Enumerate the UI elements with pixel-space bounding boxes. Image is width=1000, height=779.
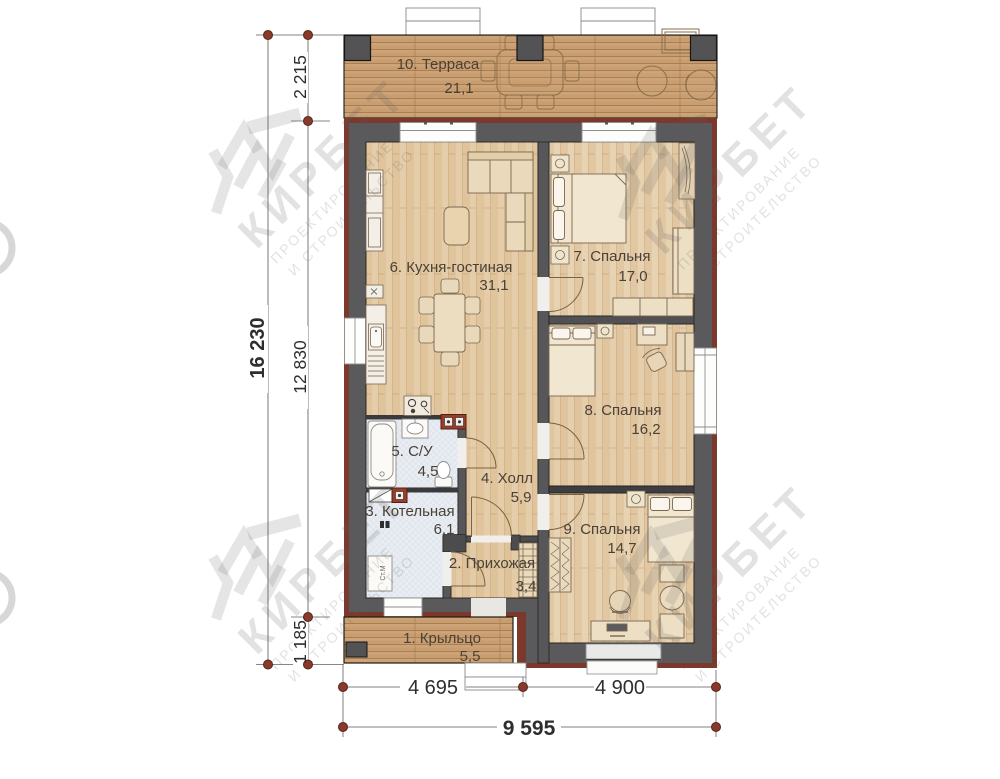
svg-text:2. Прихожая: 2. Прихожая [449, 555, 535, 572]
svg-text:1 185: 1 185 [290, 620, 310, 664]
svg-text:6,1: 6,1 [434, 521, 455, 538]
svg-text:9 595: 9 595 [503, 717, 556, 740]
svg-text:7. Спальня: 7. Спальня [574, 248, 651, 265]
svg-text:5,9: 5,9 [511, 489, 532, 506]
svg-text:6. Кухня-гостиная: 6. Кухня-гостиная [390, 259, 513, 276]
svg-text:5. С/У: 5. С/У [391, 443, 433, 460]
svg-text:16,2: 16,2 [631, 421, 660, 438]
svg-text:8. Спальня: 8. Спальня [585, 402, 662, 419]
svg-text:17,0: 17,0 [618, 268, 647, 285]
svg-text:12 830: 12 830 [290, 340, 310, 394]
svg-text:10. Терраса: 10. Терраса [397, 56, 480, 73]
svg-text:14,7: 14,7 [607, 540, 636, 557]
svg-text:5,5: 5,5 [460, 648, 481, 665]
svg-text:3. Котельная: 3. Котельная [365, 503, 454, 520]
svg-text:4,5: 4,5 [418, 463, 439, 480]
svg-text:31,1: 31,1 [479, 277, 508, 294]
svg-text:1. Крыльцо: 1. Крыльцо [403, 630, 481, 647]
svg-text:4. Холл: 4. Холл [481, 470, 533, 487]
svg-text:21,1: 21,1 [444, 80, 473, 97]
svg-text:3,4: 3,4 [516, 578, 537, 595]
svg-text:2 215: 2 215 [290, 55, 310, 99]
svg-text:9. Спальня: 9. Спальня [564, 521, 641, 538]
svg-text:16 230: 16 230 [247, 317, 269, 378]
svg-text:4 900: 4 900 [595, 677, 645, 699]
svg-text:4 695: 4 695 [408, 677, 458, 699]
